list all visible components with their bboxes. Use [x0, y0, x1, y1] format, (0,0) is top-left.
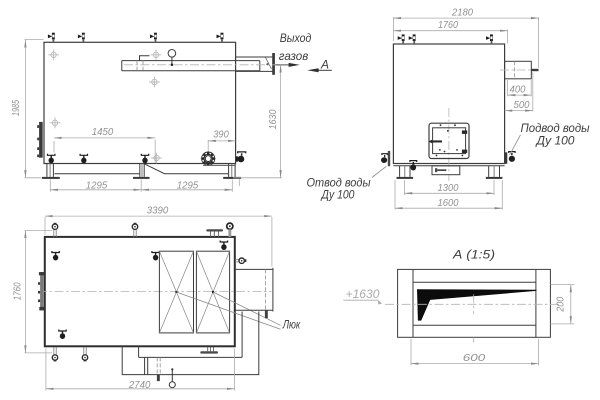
svg-text:+1630: +1630 [346, 289, 381, 301]
svg-text:500: 500 [514, 100, 530, 111]
svg-text:1295: 1295 [177, 180, 199, 191]
svg-text:Выход: Выход [280, 31, 312, 45]
svg-text:600: 600 [463, 353, 486, 364]
svg-text:1300: 1300 [438, 183, 459, 194]
svg-text:3390: 3390 [147, 206, 169, 217]
svg-text:200: 200 [556, 296, 567, 312]
svg-text:2180: 2180 [451, 8, 473, 19]
svg-text:2740: 2740 [128, 380, 151, 391]
svg-text:1630: 1630 [268, 109, 279, 129]
svg-text:Ду 100: Ду 100 [534, 134, 574, 148]
svg-text:1760: 1760 [438, 20, 458, 31]
svg-text:400: 400 [510, 85, 526, 96]
svg-text:1600: 1600 [438, 198, 459, 209]
svg-text:газов: газов [279, 49, 309, 63]
svg-text:А (1:5): А (1:5) [452, 248, 495, 262]
svg-text:1760: 1760 [12, 282, 23, 300]
svg-text:Люк: Люк [282, 317, 301, 331]
svg-text:1295: 1295 [86, 180, 108, 191]
svg-text:390: 390 [213, 130, 229, 141]
svg-text:А: А [320, 57, 329, 71]
svg-text:1450: 1450 [92, 127, 114, 138]
svg-text:Ду 100: Ду 100 [320, 188, 355, 202]
svg-text:1985: 1985 [11, 100, 22, 116]
